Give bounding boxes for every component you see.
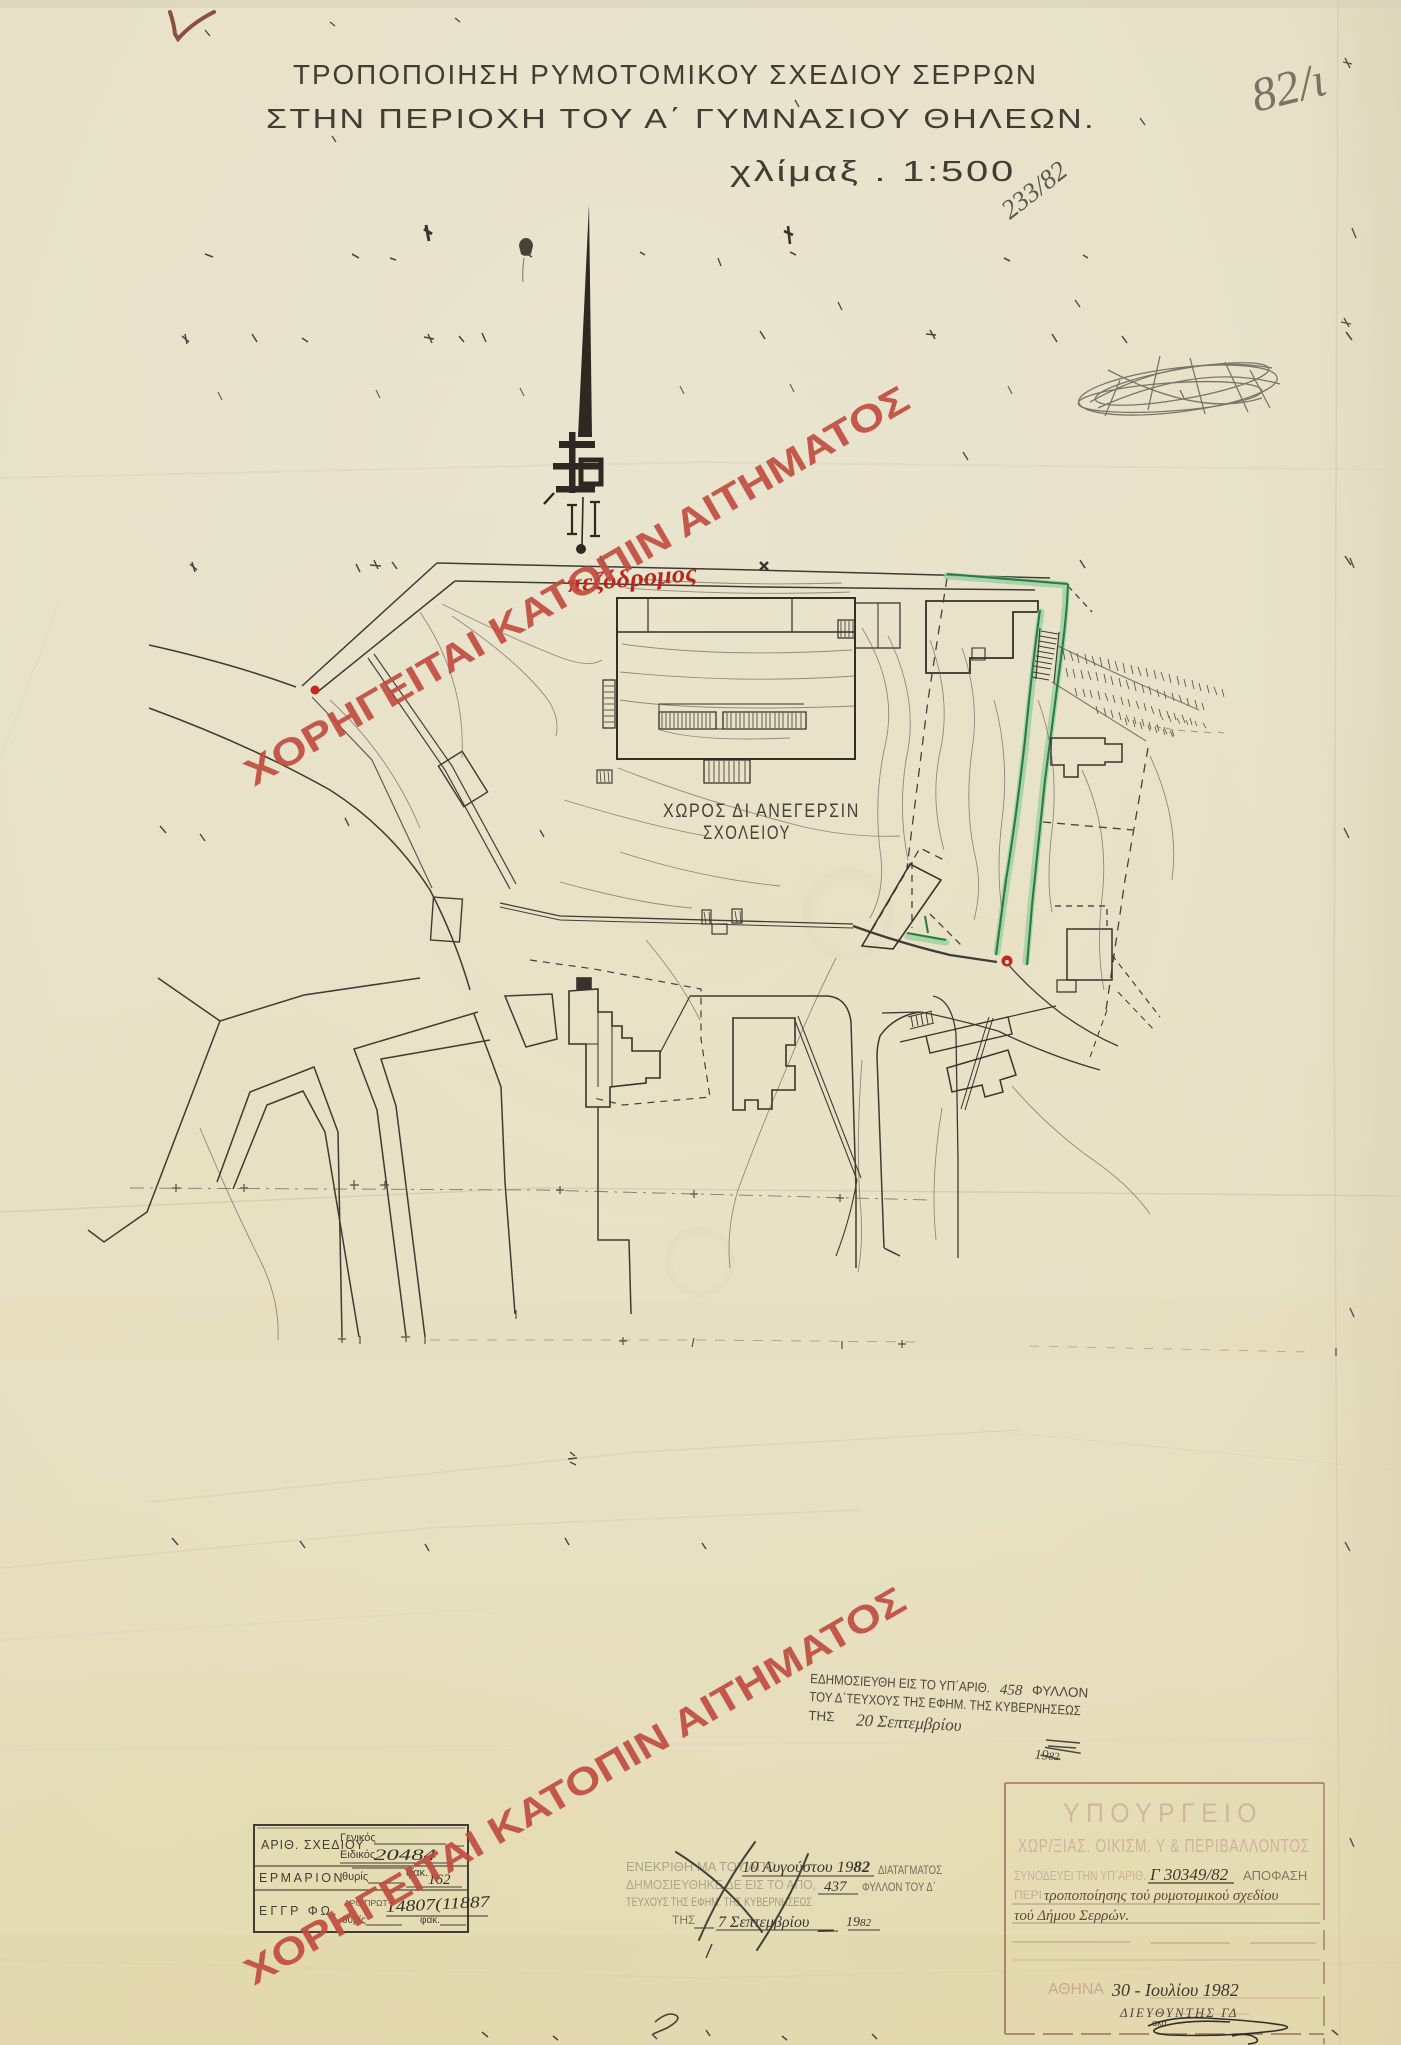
svg-text:ΣΥΝΟΔΕΥΕΙ ΤΗΝ ΥΠ΄ΑΡΙΘ.: ΣΥΝΟΔΕΥΕΙ ΤΗΝ ΥΠ΄ΑΡΙΘ.	[1014, 1869, 1146, 1883]
svg-text:437: 437	[824, 1879, 848, 1895]
svg-text:θυρίς: θυρίς	[342, 1871, 368, 1883]
svg-text:ΑΘΗΝΑ: ΑΘΗΝΑ	[1048, 1981, 1104, 1998]
svg-text:ΦΥΛΛΟΝ ΤΟΥ Δ΄: ΦΥΛΛΟΝ ΤΟΥ Δ΄	[862, 1882, 936, 1894]
svg-text:7 Σεπτεμβρίου: 7 Σεπτεμβρίου	[718, 1914, 809, 1931]
svg-text:10 Αυγούστου 1982: 10 Αυγούστου 1982	[742, 1859, 870, 1876]
svg-text:ΤΡΟΠΟΠΟΙΗΣΗ ΡΥΜΟΤΟΜΙΚΟΥ ΣΧΕΔ: ΤΡΟΠΟΠΟΙΗΣΗ ΡΥΜΟΤΟΜΙΚΟΥ ΣΧΕΔΙΟΥ ΣΕΡΡΩΝ	[293, 59, 1038, 90]
svg-text:ΣΧΟΛΕΙΟΥ: ΣΧΟΛΕΙΟΥ	[703, 822, 791, 844]
svg-text:ΔΙΑΤΑΓΜΑΤΟΣ: ΔΙΑΤΑΓΜΑΤΟΣ	[878, 1865, 942, 1877]
svg-text:Γ 30349/82: Γ 30349/82	[1149, 1865, 1229, 1884]
svg-text:ΤΗΣ: ΤΗΣ	[672, 1913, 695, 1927]
svg-text:φακ.: φακ.	[420, 1915, 440, 1926]
svg-text:1982: 1982	[846, 1915, 872, 1930]
svg-text:ΦΥΛΛΟΝ: ΦΥΛΛΟΝ	[1032, 1683, 1089, 1701]
svg-text:ΕΡΜΑΡΙΟΝ: ΕΡΜΑΡΙΟΝ	[259, 1871, 345, 1885]
svg-text:458: 458	[999, 1682, 1023, 1699]
svg-text:ΠΕΡΙ: ΠΕΡΙ	[1014, 1888, 1042, 1902]
svg-text:χλίμαξ . 1:500: χλίμαξ . 1:500	[730, 156, 1016, 188]
svg-text:30 - Ιουλίου 1982: 30 - Ιουλίου 1982	[1111, 1980, 1239, 2000]
svg-text:Γενικός: Γενικός	[340, 1832, 376, 1844]
svg-text:Ειδικός: Ειδικός	[340, 1849, 375, 1861]
svg-text:ΥΠΟΥΡΓΕΙΟ: ΥΠΟΥΡΓΕΙΟ	[1063, 1798, 1263, 1828]
svg-text:ΣΤΗΝ ΠΕΡΙΟΧΗ ΤΟΥ Α΄ ΓΥΜΝΑΣΙ: ΣΤΗΝ ΠΕΡΙΟΧΗ ΤΟΥ Α΄ ΓΥΜΝΑΣΙΟΥ ΘΗΛΕΩΝ.	[266, 103, 1096, 134]
svg-text:ΤΗΣ: ΤΗΣ	[808, 1708, 835, 1724]
svg-text:τροποποίησης τού ρυμοτομικού: τροποποίησης τού ρυμοτομικού σχεδίου	[1044, 1888, 1278, 1904]
svg-text:τού Δήμου Σερρών.: τού Δήμου Σερρών.	[1014, 1908, 1129, 1924]
svg-text:ΑΠΟΦΑΣΗ: ΑΠΟΦΑΣΗ	[1243, 1868, 1307, 1883]
svg-text:ΧΩΡ/ΞΙΑΣ. ΟΙΚΙΣΜ. Υ & ΠΕΡΙΒΑΛΛ: ΧΩΡ/ΞΙΑΣ. ΟΙΚΙΣΜ. Υ & ΠΕΡΙΒΑΛΛΟΝΤΟΣ	[1018, 1836, 1310, 1856]
svg-text:ΧΩΡΟΣ ΔΙ ΑΝΕΓΕΡΣΙΝ: ΧΩΡΟΣ ΔΙ ΑΝΕΓΕΡΣΙΝ	[663, 800, 860, 822]
